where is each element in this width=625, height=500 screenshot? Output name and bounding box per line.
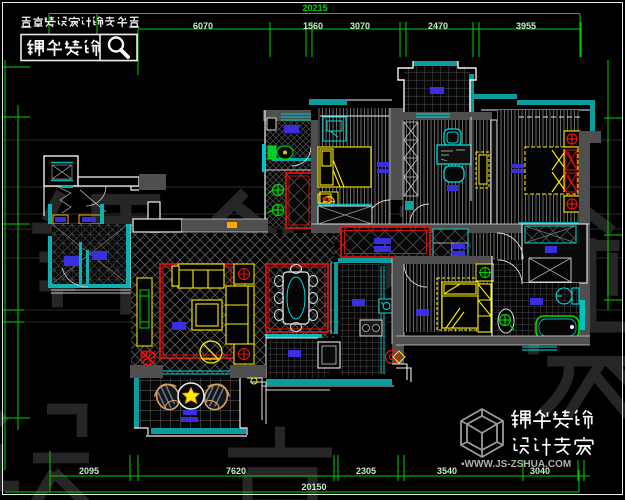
svg-text:7620: 7620 bbox=[226, 466, 246, 476]
svg-text:1560: 1560 bbox=[303, 21, 323, 31]
svg-text:3540: 3540 bbox=[437, 466, 457, 476]
svg-text:20215: 20215 bbox=[302, 3, 327, 13]
svg-text:6070: 6070 bbox=[193, 21, 213, 31]
svg-text:2095: 2095 bbox=[79, 466, 99, 476]
svg-text:▪WWW.JS-ZSHUA.COM: ▪WWW.JS-ZSHUA.COM bbox=[461, 459, 571, 470]
svg-text:2470: 2470 bbox=[428, 21, 448, 31]
svg-text:3955: 3955 bbox=[516, 21, 536, 31]
svg-text:3070: 3070 bbox=[350, 21, 370, 31]
svg-text:20150: 20150 bbox=[301, 482, 326, 492]
svg-text:2305: 2305 bbox=[356, 466, 376, 476]
